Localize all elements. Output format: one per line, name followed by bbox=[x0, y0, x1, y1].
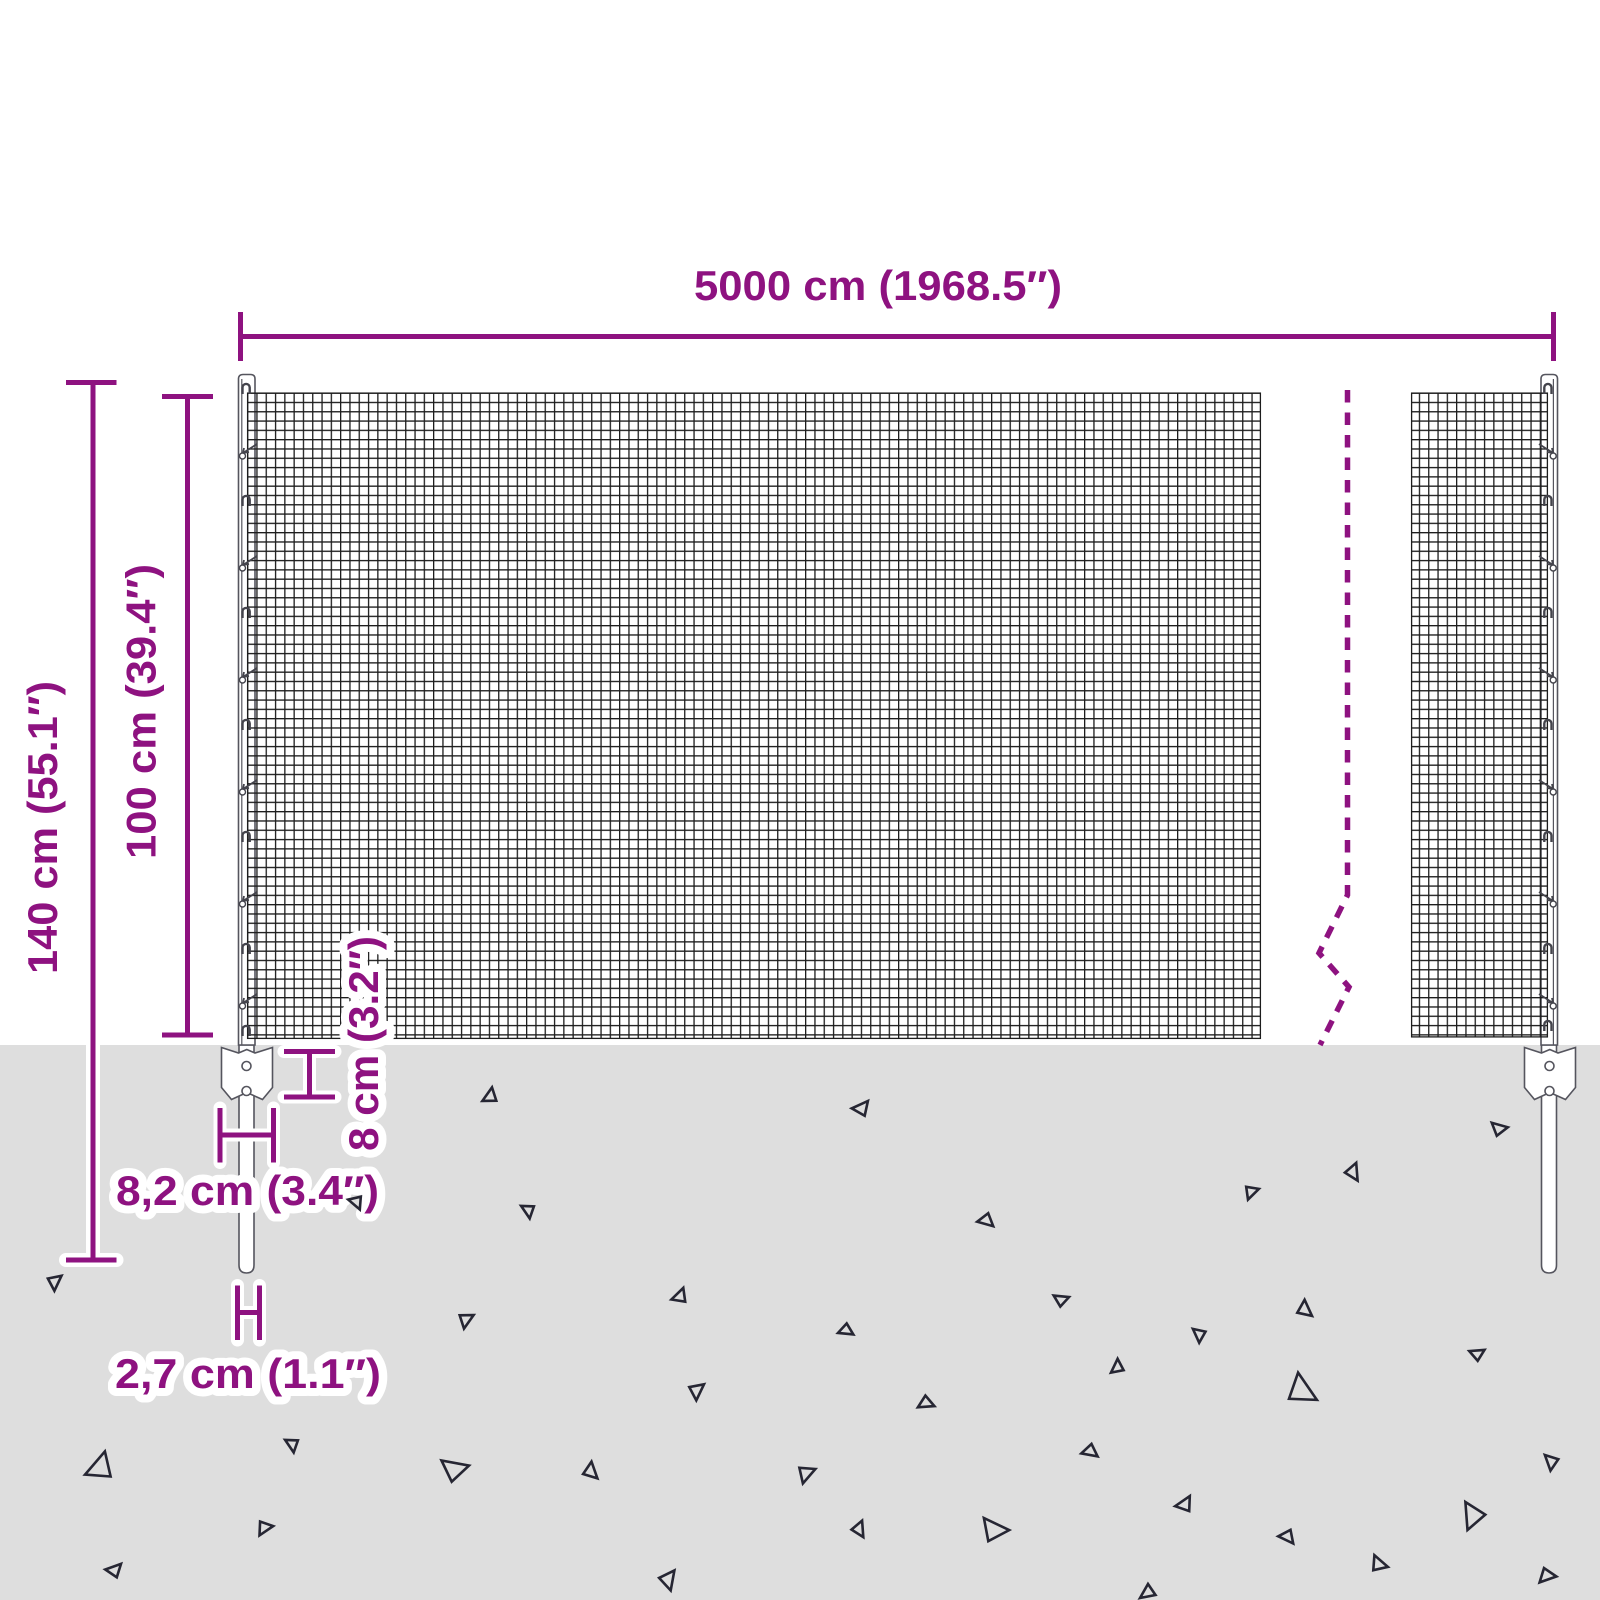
svg-text:2,7 cm (1.1″): 2,7 cm (1.1″) bbox=[115, 1350, 381, 1397]
svg-text:100 cm (39.4″): 100 cm (39.4″) bbox=[118, 564, 165, 859]
svg-text:140 cm (55.1″): 140 cm (55.1″) bbox=[19, 681, 66, 974]
svg-text:5000 cm (1968.5″): 5000 cm (1968.5″) bbox=[694, 262, 1062, 309]
svg-text:8,2 cm (3.4″): 8,2 cm (3.4″) bbox=[116, 1167, 379, 1214]
svg-text:8 cm (3.2″): 8 cm (3.2″) bbox=[340, 936, 387, 1151]
